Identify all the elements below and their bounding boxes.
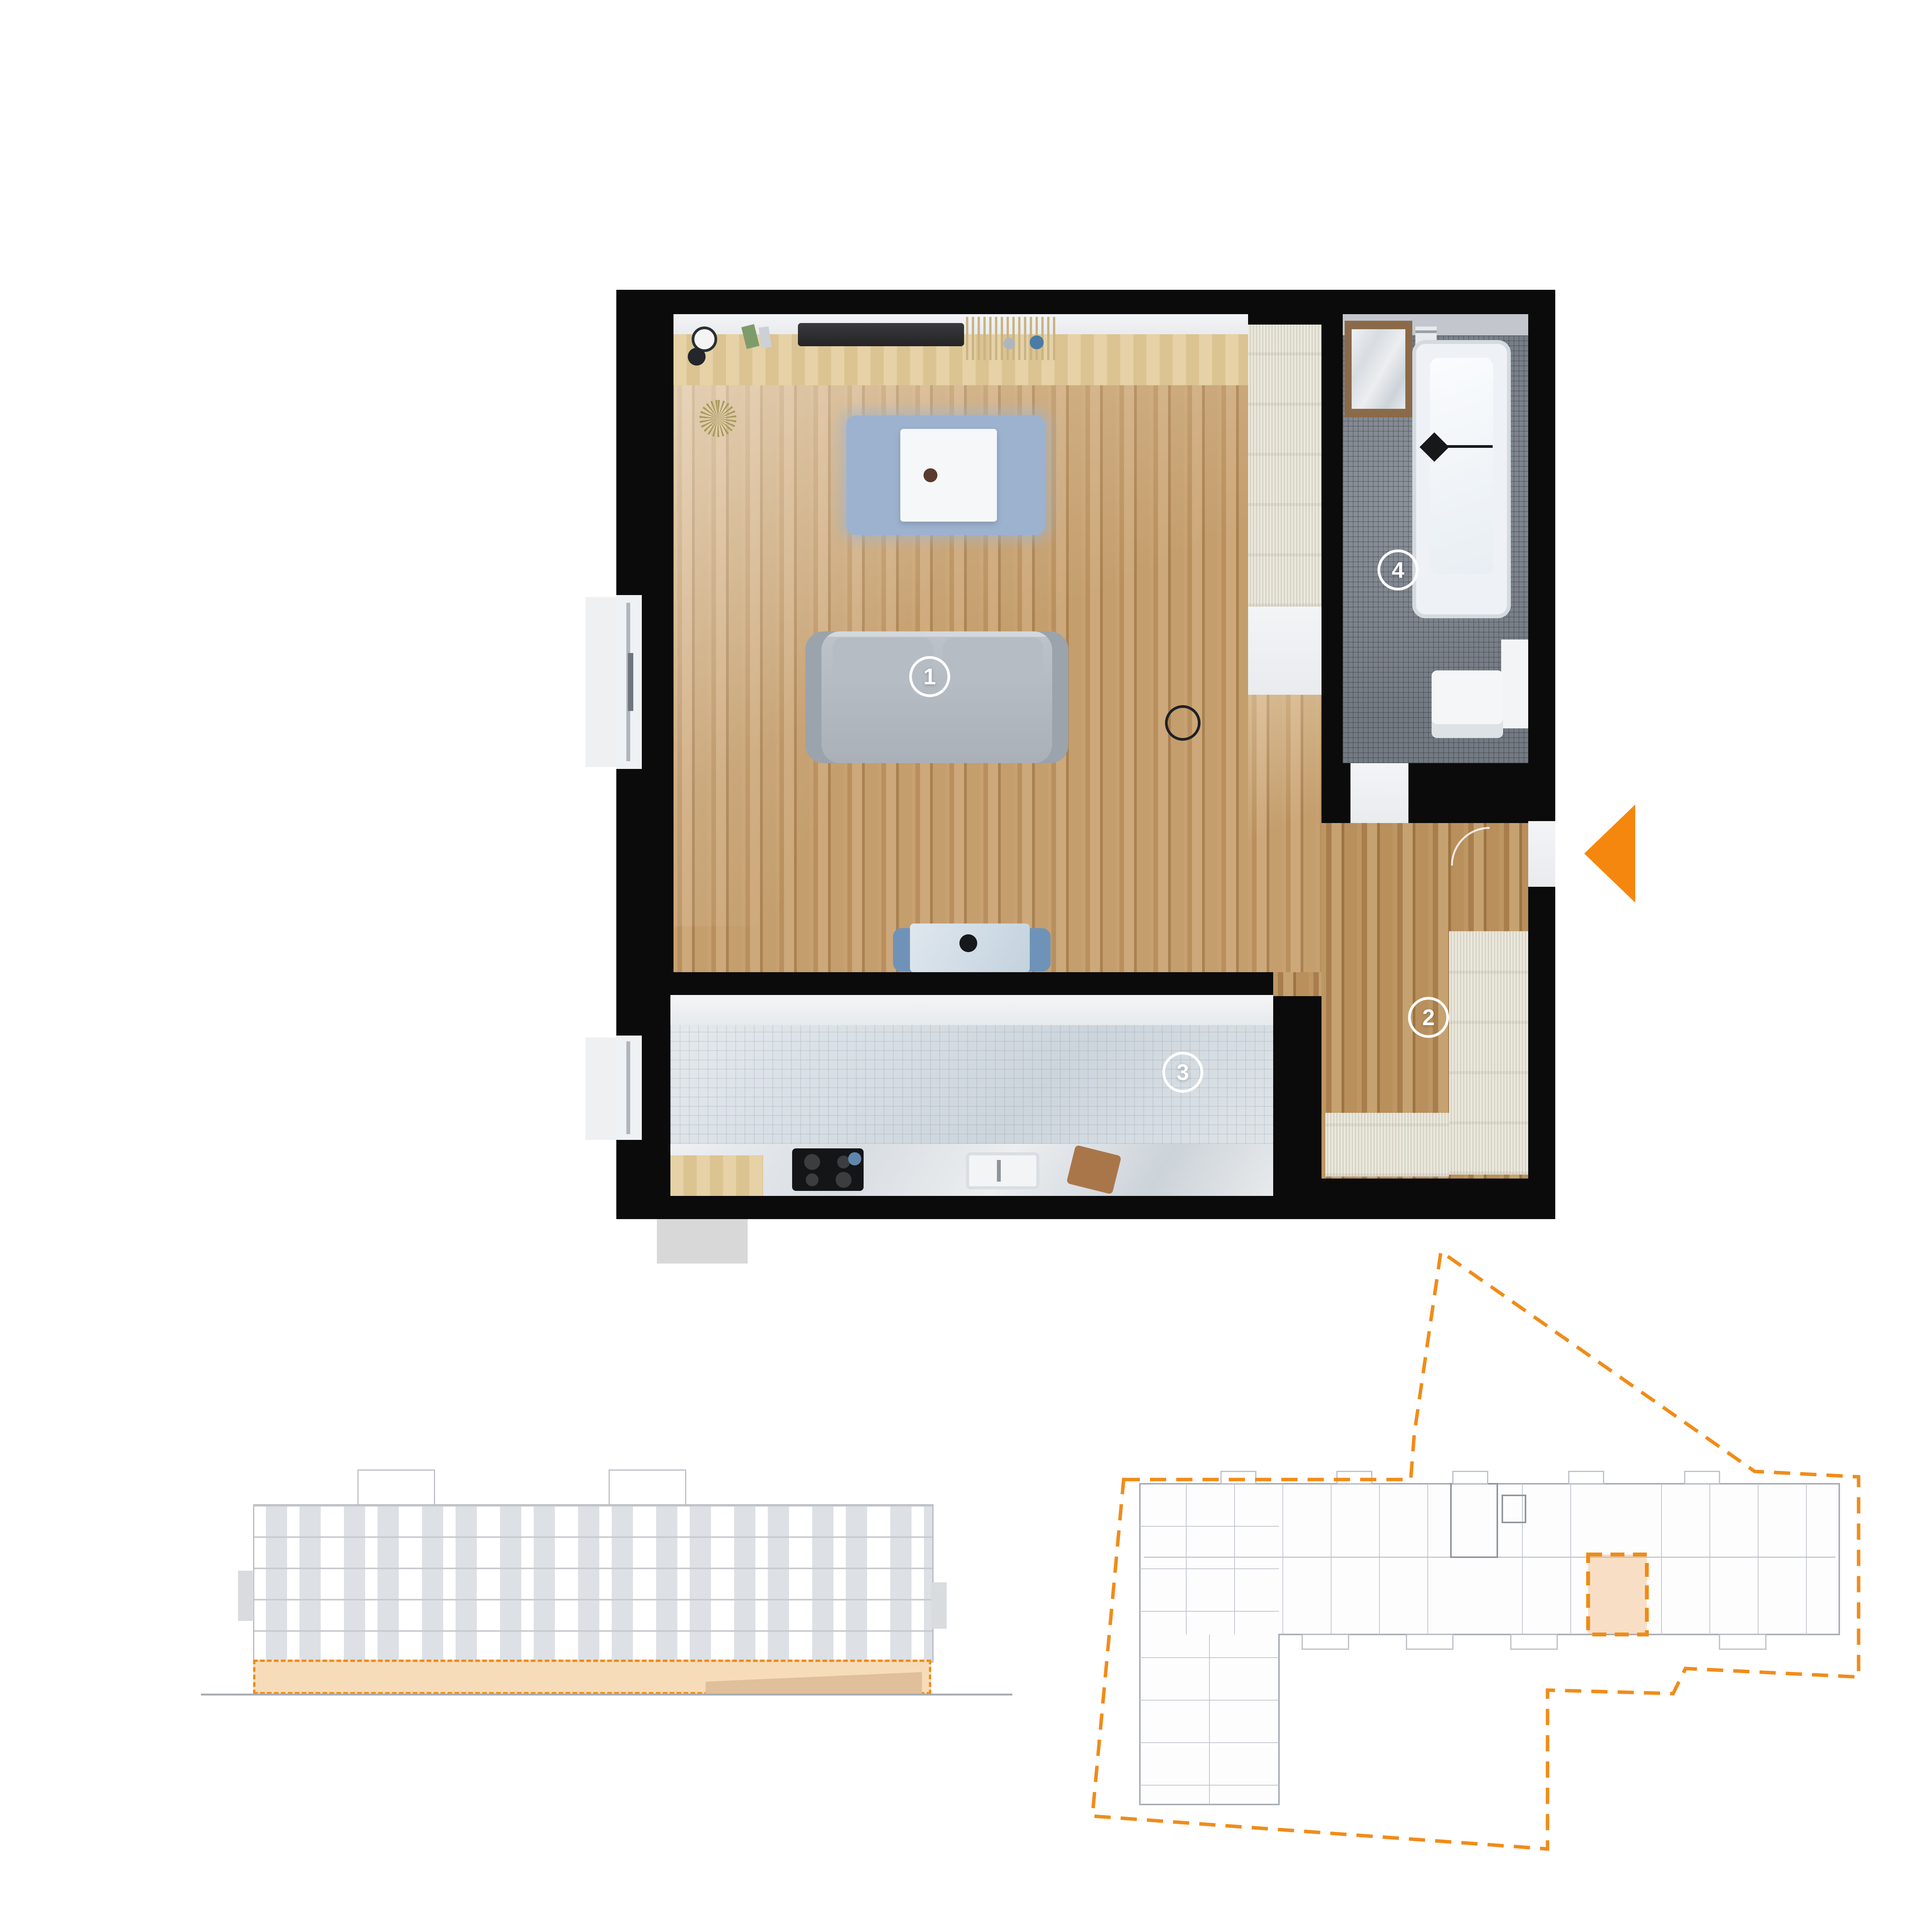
entrance-arrow-icon (1584, 804, 1635, 903)
bath-lamp-arm (1435, 445, 1493, 448)
kettle (848, 1152, 861, 1165)
roof-stub-right (609, 1469, 686, 1507)
kitchen-upper-cabinets (670, 995, 1273, 1025)
elevation-side-left (238, 1571, 253, 1621)
building-elevation (201, 1466, 1012, 1698)
sunburst-decor (699, 400, 736, 437)
vase-blue (1030, 335, 1044, 349)
toilet (1432, 670, 1503, 738)
exterior-shadow-block (657, 1219, 748, 1264)
badge-bucatarie-num: 3 (1177, 1060, 1189, 1085)
cabinet-white (1248, 607, 1321, 695)
bowl-grey (1003, 338, 1015, 349)
entrance-gap (1528, 821, 1555, 887)
hall-wardrobe-tall (1449, 931, 1528, 1175)
badge-bucatarie: 3 (1162, 1052, 1203, 1093)
highlighted-unit (1588, 1554, 1647, 1634)
badge-hol: 2 (1408, 997, 1449, 1038)
kitchen-cabinet-wood (670, 1155, 763, 1196)
hall-wardrobe-low (1325, 1113, 1449, 1177)
floor-plan: 1 2 3 4 (616, 290, 1555, 1219)
badge-living: 1 (909, 656, 950, 697)
coffee-table (900, 429, 997, 522)
passage-floor (1248, 695, 1321, 972)
living-wardrobe (1248, 325, 1321, 607)
table-tray (959, 934, 977, 952)
pendant-lamp (688, 348, 706, 366)
exterior-sill-top (585, 597, 616, 767)
elevation-side-right (931, 1582, 947, 1629)
sofa-cushion-right (943, 638, 1043, 684)
kitchen-sink (966, 1152, 1039, 1189)
wire-ball-decor (1165, 705, 1201, 741)
elevation-facade (253, 1504, 934, 1663)
site-plan-svg (1086, 1248, 1866, 1851)
sink-faucet (997, 1160, 1001, 1182)
exterior-sill-bottom (585, 1037, 616, 1140)
shower-niche (1501, 639, 1528, 728)
apartment-datasheet-page: 1 2 3 4 (0, 0, 1932, 1932)
kitchen-window-glass (626, 1041, 630, 1134)
door-handle (628, 653, 633, 711)
highlighted-ground-floor (253, 1660, 931, 1694)
bathtub-inner (1430, 358, 1493, 574)
badge-hol-num: 2 (1422, 1005, 1435, 1031)
roof-stub-left (357, 1469, 435, 1507)
badge-baie: 4 (1378, 549, 1418, 590)
badge-baie-num: 4 (1392, 557, 1404, 583)
vanity-sink (1352, 329, 1405, 409)
site-plan (1086, 1248, 1866, 1851)
badge-living-num: 1 (923, 664, 936, 690)
ground-line (201, 1694, 1012, 1696)
bath-door-gap (1350, 763, 1408, 823)
coffee-table-decor (923, 468, 937, 482)
ramp (706, 1671, 922, 1694)
tv-console (798, 323, 964, 346)
kitchen-door-gap (1273, 972, 1321, 996)
